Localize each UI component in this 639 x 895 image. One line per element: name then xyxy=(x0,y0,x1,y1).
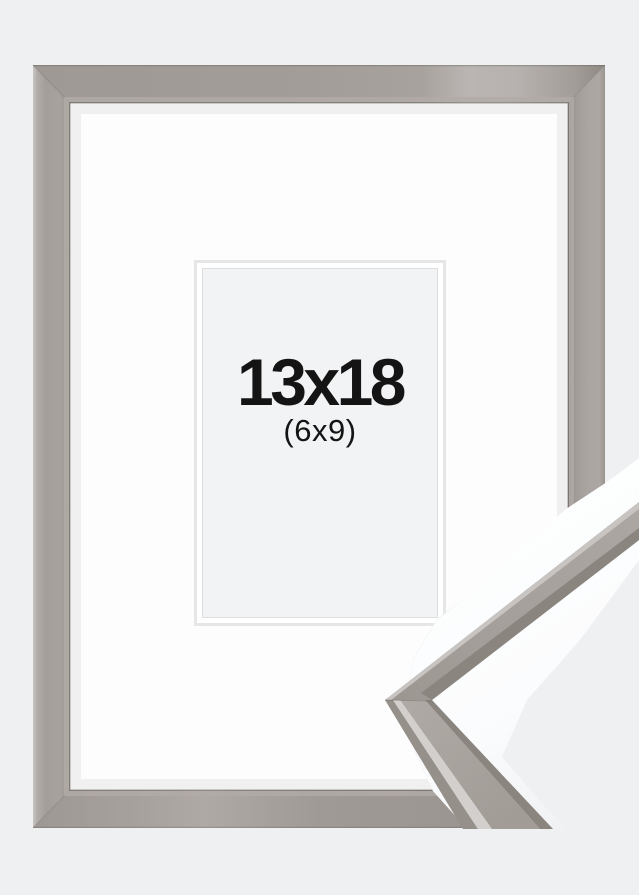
size-label: 13x18 xyxy=(237,345,405,419)
product-image: 13x18 (6x9) xyxy=(0,0,639,895)
secondary-size-label: (6x9) xyxy=(283,413,356,448)
frame-photo-svg: 13x18 (6x9) xyxy=(0,0,639,895)
